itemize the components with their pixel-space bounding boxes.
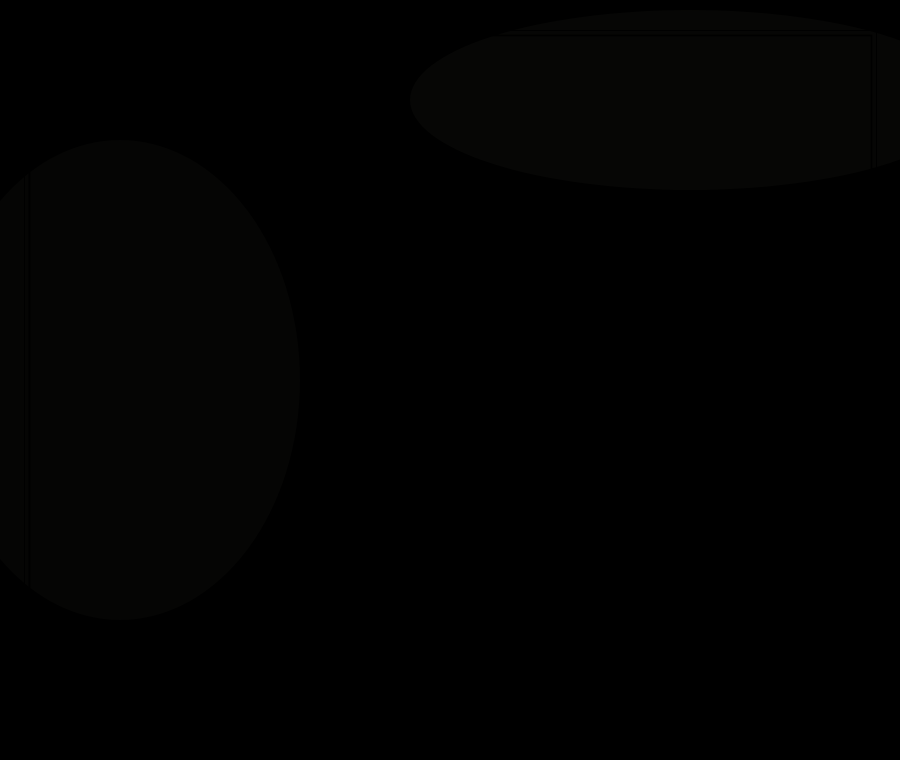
etching-sheet: Joseph Q. Adams. [0,0,900,760]
globe-theatre-drawing [0,0,900,760]
